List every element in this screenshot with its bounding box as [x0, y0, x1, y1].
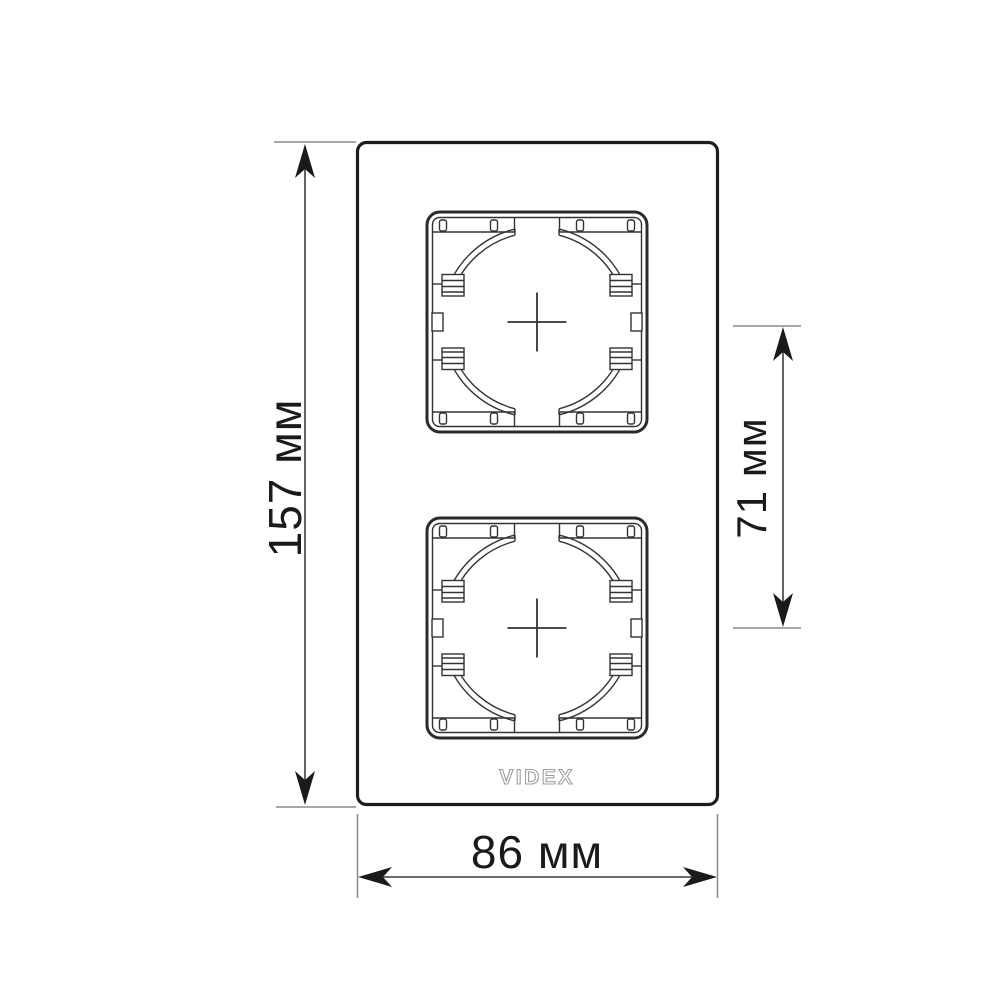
spacing-dimension: 71 мм — [728, 327, 793, 627]
height-dimension: 157 мм — [259, 144, 315, 805]
spacing-dimension-label: 71 мм — [728, 417, 775, 538]
dimension-diagram: VIDEX 157 мм 71 мм 86 мм — [0, 0, 1000, 1000]
videx-logo: VIDEX — [499, 766, 575, 789]
width-dimension: 86 мм — [358, 826, 717, 887]
socket-opening-bottom — [427, 518, 647, 738]
socket-opening-top — [427, 212, 647, 432]
height-dimension-label: 157 мм — [259, 399, 311, 558]
width-dimension-label: 86 мм — [471, 826, 603, 878]
diagram-canvas: VIDEX 157 мм 71 мм 86 мм — [0, 0, 1000, 1000]
